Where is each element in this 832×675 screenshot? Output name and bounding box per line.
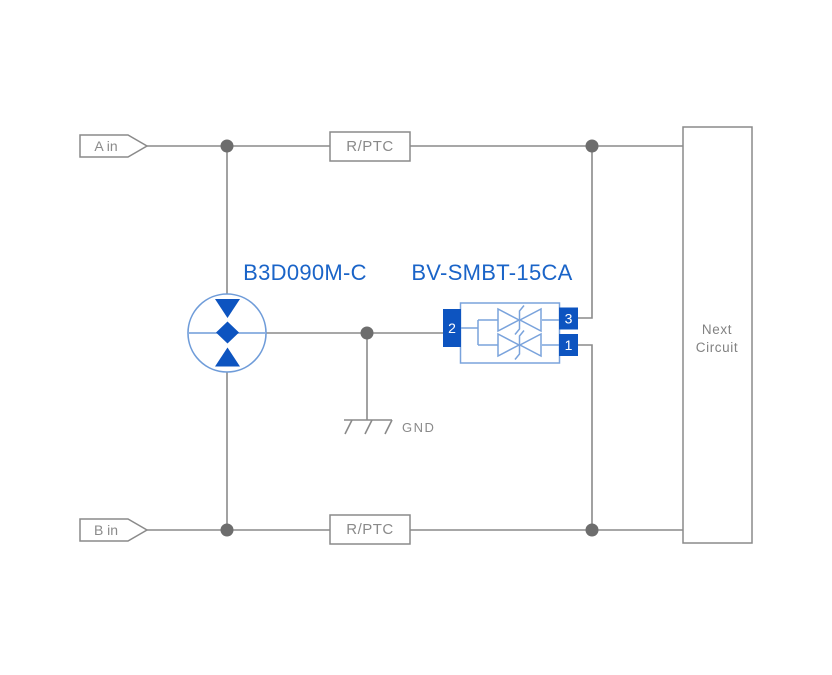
ground-label: GND [402,420,435,435]
tvs-pin-2: 2 [443,309,461,347]
next-circuit-label-line1: Next [702,322,732,337]
junction-dot-top-left [221,140,234,153]
input-b-flag: B in [80,519,147,541]
junction-dot-ground [361,327,374,340]
tvs-array-symbol: 2 3 1 [443,303,578,363]
tvs-pin-2-label: 2 [448,320,456,336]
tvs-pin-3: 3 [559,308,578,330]
ground-hatch-1 [345,420,352,434]
tvs-pin-3-label: 3 [565,311,573,327]
input-a-flag: A in [80,135,147,157]
pin3-to-top-rail-wire [578,146,592,318]
gdt-center-diamond [216,322,239,344]
circuit-diagram-page: GND A in B in R/PTC R/PTC Next Circuit [0,0,832,675]
resistor-bottom-label: R/PTC [346,521,394,538]
tvs-part-number-label: BV-SMBT-15CA [411,260,572,285]
input-a-label: A in [94,138,117,154]
resistor-top: R/PTC [330,132,410,161]
junction-dot-bottom-left [221,524,234,537]
gdt-symbol-icon [188,294,266,372]
gdt-top-triangle [215,299,240,318]
tvs-body [461,303,560,363]
next-circuit-block: Next Circuit [683,127,752,543]
input-b-label: B in [94,522,118,538]
junction-dot-top-right [586,140,599,153]
tvs-pin-1-label: 1 [565,337,573,353]
resistor-bottom: R/PTC [330,515,410,544]
ground-icon [344,420,392,434]
resistor-top-label: R/PTC [346,138,394,155]
gdt-bottom-triangle [215,348,240,367]
gdt-part-number-label: B3D090M-C [243,260,367,285]
ground-hatch-3 [385,420,392,434]
tvs-pin-1: 1 [559,334,578,356]
ground-hatch-2 [365,420,372,434]
pin1-to-bottom-rail-wire [578,345,592,530]
next-circuit-label-line2: Circuit [696,340,738,355]
junction-dot-bottom-right [586,524,599,537]
protection-circuit-schematic: GND A in B in R/PTC R/PTC Next Circuit [0,0,832,675]
